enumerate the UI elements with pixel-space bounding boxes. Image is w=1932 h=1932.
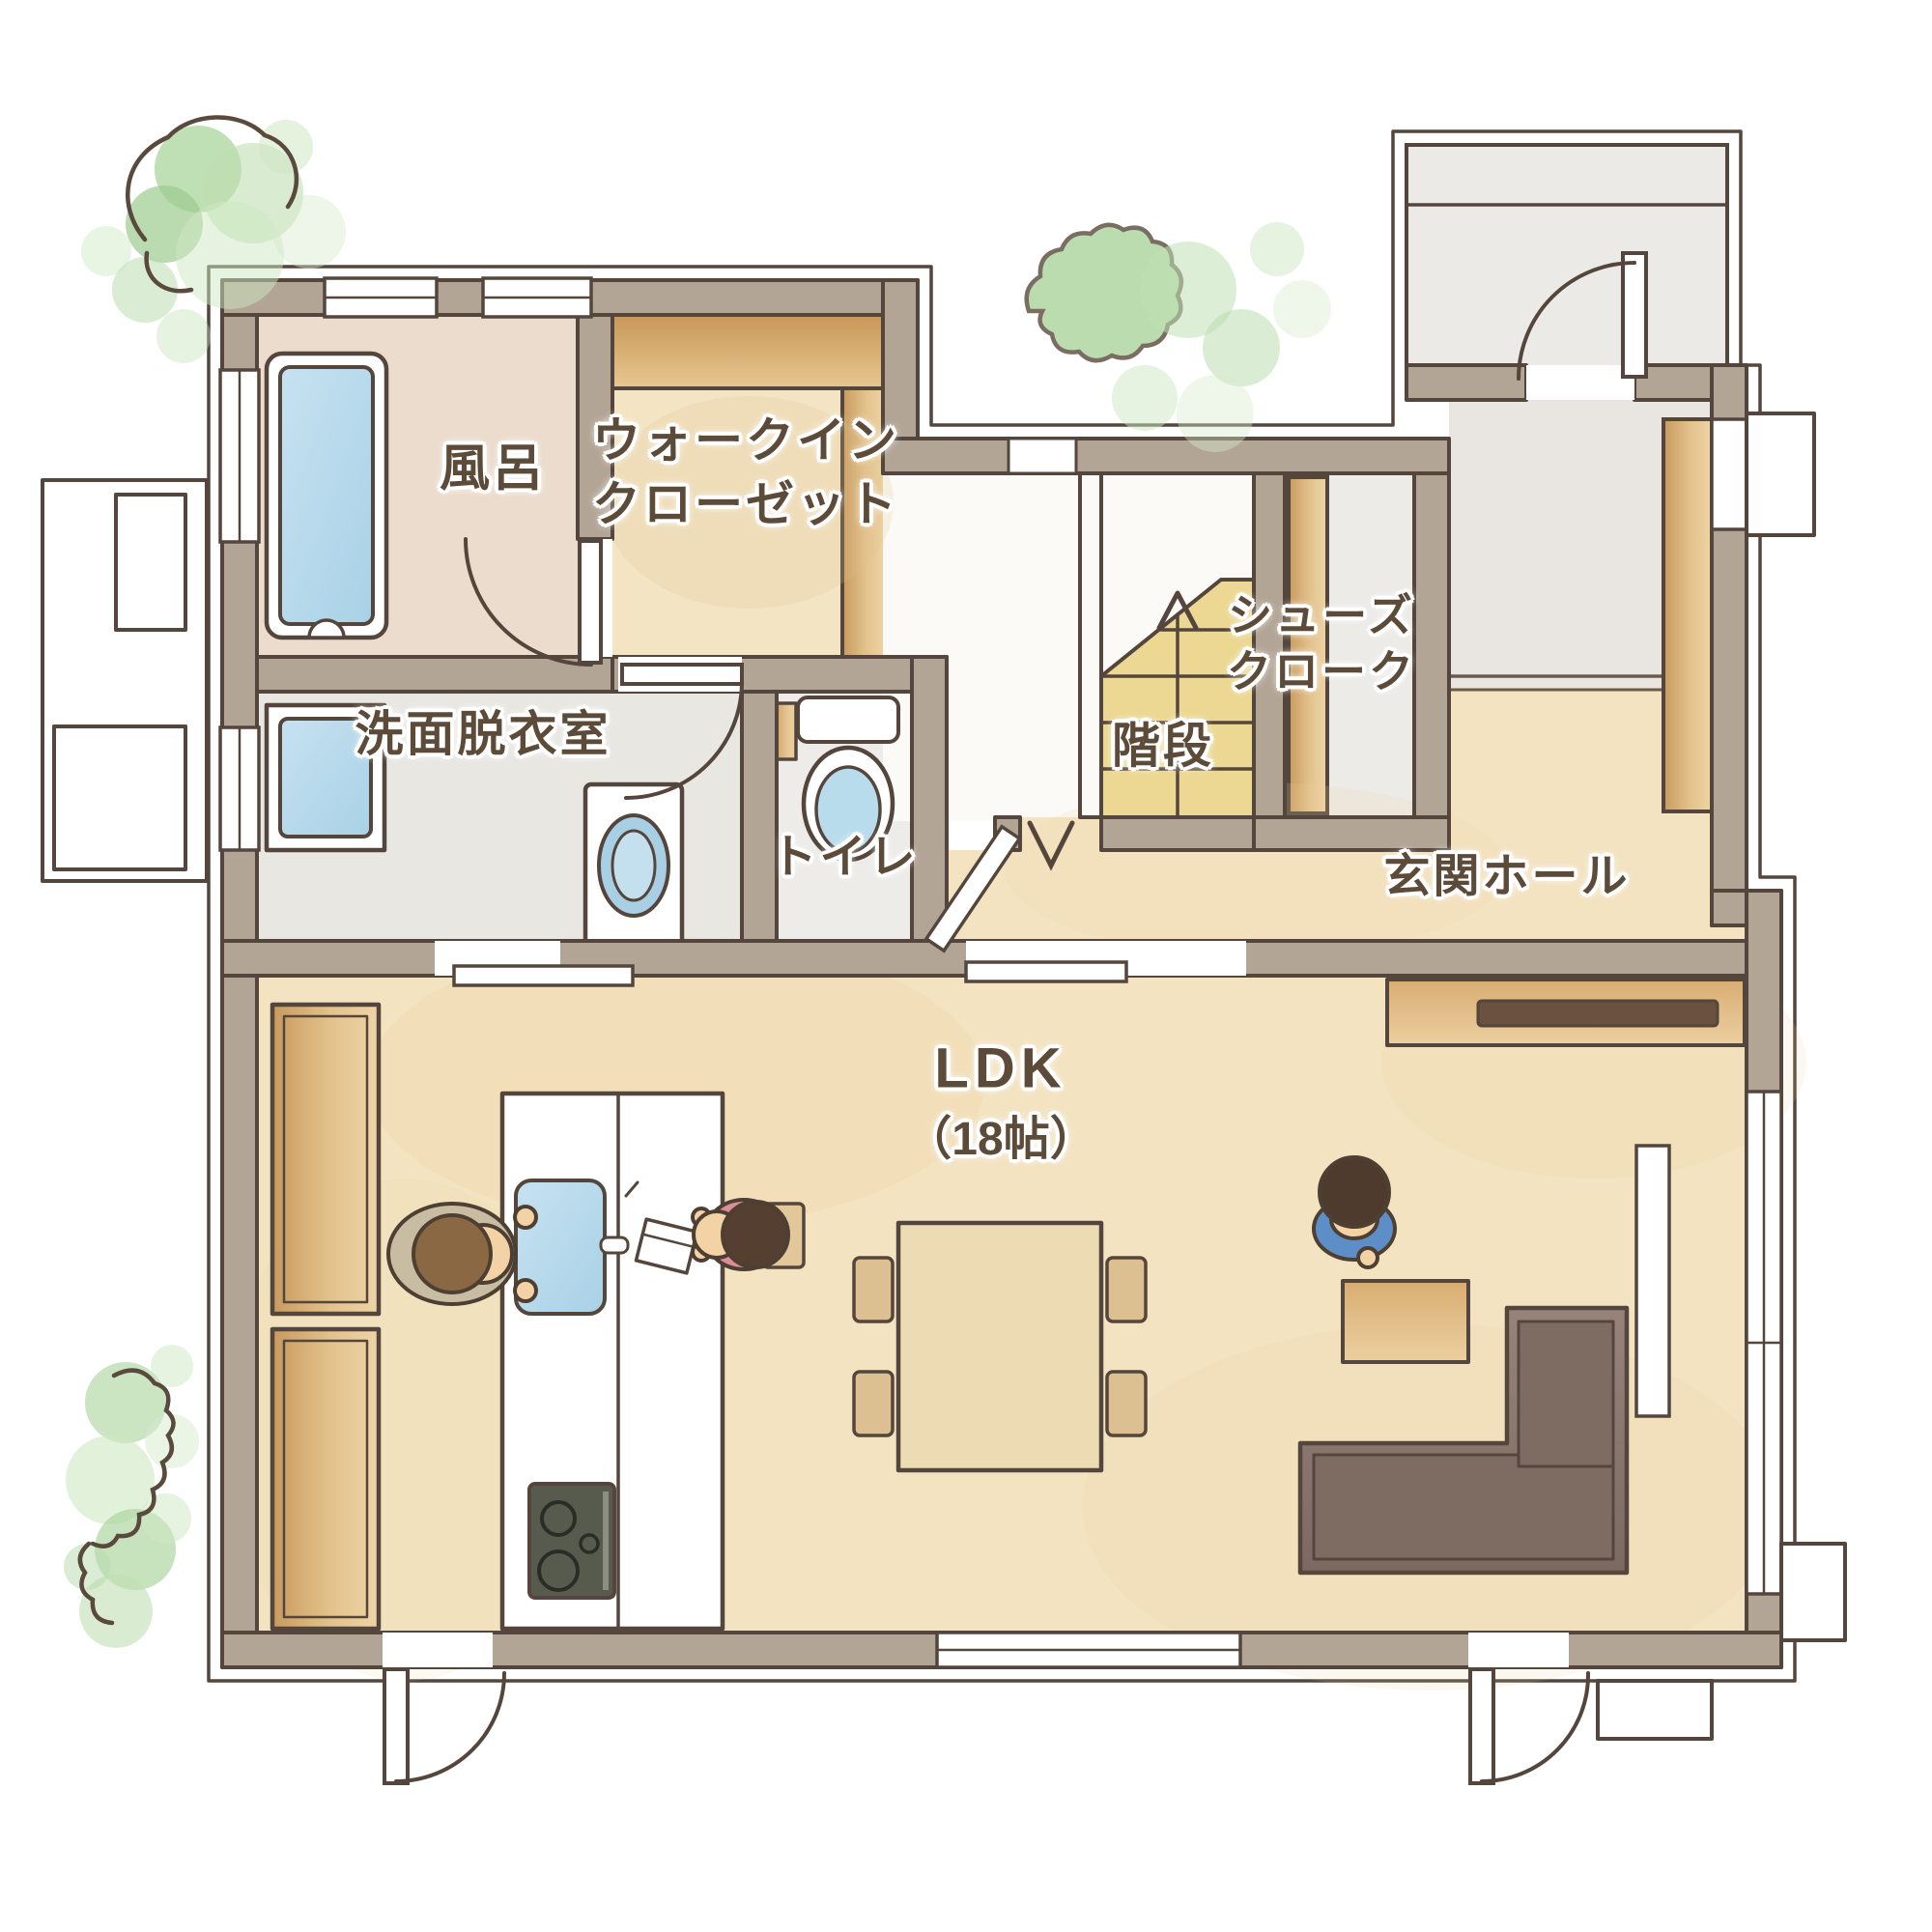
kitchen-island	[502, 1094, 723, 1629]
label-bath: 風呂	[440, 428, 546, 500]
terrace-left-inner-1	[116, 495, 185, 630]
kitchen-wall-cabinet-upper	[272, 1005, 379, 1314]
opening-door-bottom-right	[1468, 1633, 1569, 1667]
label-walk-in-closet-line1: ウォークイン	[592, 402, 899, 471]
floor-plan-canvas	[0, 0, 1932, 1932]
label-shoe-cloak-line1: シューズ	[1228, 581, 1415, 644]
person-parent-at-sink	[388, 1204, 536, 1304]
dining-chair	[1107, 1372, 1146, 1435]
wall-genkan-top-left	[1406, 365, 1526, 400]
sliding-door-washroom	[454, 966, 633, 985]
opening-front-door	[1526, 365, 1634, 400]
hand	[515, 1207, 536, 1228]
window-box-right-upper	[1747, 413, 1814, 535]
label-toilet: トイレ	[770, 818, 918, 886]
ac-unit-right	[1781, 1544, 1845, 1640]
hair	[1320, 1157, 1389, 1227]
wic-shelf-top	[612, 315, 885, 388]
dining-chair	[1107, 1258, 1146, 1321]
terrace-left-inner-2	[54, 726, 185, 869]
stove	[529, 1484, 614, 1598]
tree-bottom-left	[64, 1345, 199, 1648]
washing-machine	[585, 784, 682, 947]
label-washroom: 洗面脱衣室	[355, 696, 611, 765]
dining-table	[854, 1223, 1146, 1470]
dining-chair	[854, 1258, 893, 1321]
wall-mid	[883, 439, 1449, 473]
step-bottom-right	[1598, 1681, 1712, 1739]
wall-stairs-bottom	[1101, 817, 1254, 850]
label-stairs: 階段	[1112, 707, 1214, 777]
label-entrance-hall: 玄関ホール	[1383, 838, 1630, 905]
label-walk-in-closet-line2: クローゼット	[592, 466, 899, 535]
partition-stairs-left	[1080, 473, 1101, 817]
hand	[515, 1280, 536, 1301]
hair	[723, 1202, 788, 1267]
opening-door-bottom-left	[383, 1633, 493, 1667]
coffee-table	[1343, 1281, 1468, 1362]
bathtub	[267, 354, 386, 638]
window-mid-wall	[1009, 439, 1076, 473]
wall-toilet-left	[742, 692, 777, 941]
sink-faucet	[601, 1237, 628, 1253]
window-right-genkan	[1712, 419, 1747, 529]
tv-board	[1387, 980, 1745, 1045]
label-shoe-cloak-line2: クローク	[1227, 637, 1416, 700]
hand	[1358, 1248, 1378, 1267]
wall-shoecloak-right	[1414, 473, 1449, 850]
genkan-shoe-cabinet	[1663, 419, 1712, 811]
tv	[1478, 1001, 1718, 1026]
label-ldk: LDK	[934, 1037, 1066, 1101]
hair	[413, 1215, 491, 1293]
door-bottom-left	[384, 1669, 504, 1783]
floor-plan-illustration: 風呂 ウォークイン クローゼット 洗面脱衣室 トイレ 階段 シューズ クローク …	[0, 0, 1932, 1932]
label-ldk-size: （18帖）	[905, 1100, 1095, 1168]
tree-top-middle	[1027, 222, 1331, 452]
person-child-blue-standing	[1314, 1157, 1395, 1267]
person-child-pink-at-counter	[693, 1200, 788, 1269]
porch-floor	[1406, 145, 1727, 367]
sliding-door-leaf-open-ldk	[1636, 1146, 1669, 1416]
dining-chair	[854, 1372, 893, 1435]
door-bottom-right	[1470, 1669, 1588, 1783]
wall-toilet-right	[912, 657, 947, 941]
kitchen-wall-cabinet-lower	[272, 1329, 379, 1629]
